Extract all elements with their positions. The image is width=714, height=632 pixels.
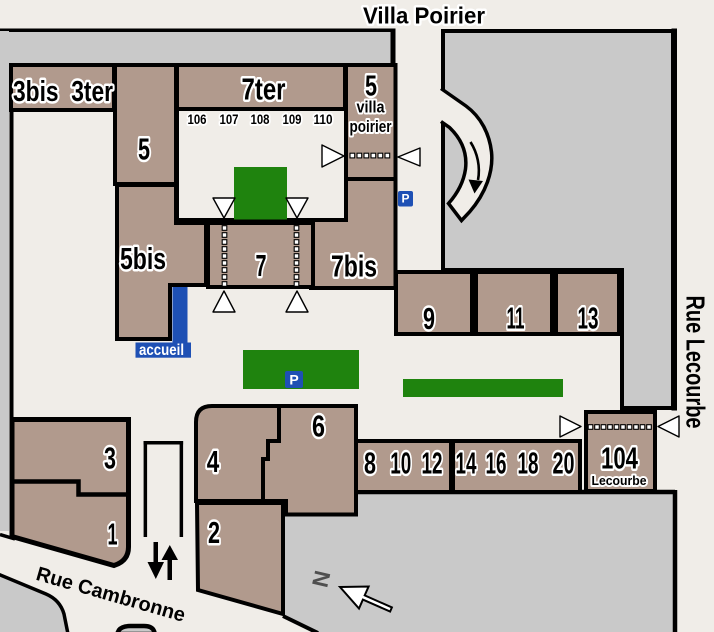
svg-text:9: 9	[423, 302, 435, 336]
svg-text:villa: villa	[357, 98, 385, 117]
svg-text:20: 20	[553, 446, 575, 480]
svg-text:104: 104	[601, 442, 638, 476]
svg-text:P: P	[401, 192, 409, 206]
svg-text:Villa Poirier: Villa Poirier	[363, 3, 485, 29]
svg-text:7: 7	[256, 249, 267, 283]
svg-text:P: P	[289, 372, 298, 388]
svg-text:106: 106	[188, 111, 207, 127]
svg-text:7bis: 7bis	[331, 249, 377, 283]
svg-text:5: 5	[138, 133, 150, 167]
svg-text:poirier: poirier	[350, 117, 392, 136]
svg-text:11: 11	[507, 302, 525, 336]
svg-text:Lecourbe: Lecourbe	[592, 473, 647, 488]
svg-text:8: 8	[364, 446, 376, 480]
svg-text:110: 110	[314, 111, 333, 127]
svg-text:14: 14	[456, 446, 477, 480]
svg-text:7ter: 7ter	[242, 73, 286, 107]
svg-text:13: 13	[578, 302, 599, 336]
svg-text:109: 109	[283, 111, 302, 127]
svg-text:10: 10	[390, 446, 411, 480]
svg-text:18: 18	[518, 446, 539, 480]
svg-text:1: 1	[108, 518, 118, 552]
svg-text:3: 3	[104, 442, 116, 476]
svg-text:3bis 3ter: 3bis 3ter	[13, 76, 113, 108]
svg-text:6: 6	[312, 410, 325, 444]
svg-text:2: 2	[208, 516, 220, 550]
svg-text:Rue Lecourbe: Rue Lecourbe	[681, 296, 711, 429]
svg-text:accueil: accueil	[139, 342, 184, 359]
svg-text:12: 12	[422, 446, 443, 480]
svg-text:108: 108	[251, 111, 270, 127]
svg-text:4: 4	[207, 445, 220, 479]
svg-text:16: 16	[486, 446, 507, 480]
svg-text:5bis: 5bis	[120, 242, 166, 276]
svg-text:107: 107	[220, 111, 239, 127]
